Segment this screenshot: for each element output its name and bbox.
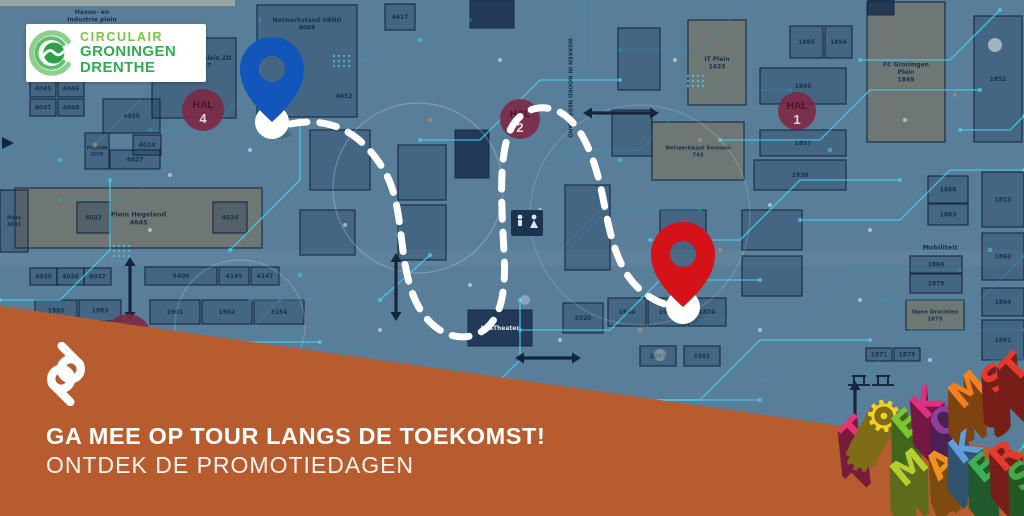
dot-grid [348, 55, 350, 57]
stand-label-line: 1861 [995, 337, 1012, 344]
dot-grid [118, 255, 120, 257]
map-label-line: Mobiliteit [922, 244, 957, 252]
stand-label: 1865 [798, 39, 815, 46]
circuit-node [318, 340, 322, 344]
dot-grid [348, 60, 350, 62]
dot-grid [118, 245, 120, 247]
glow-dot [520, 295, 530, 305]
circuit-node [228, 248, 232, 252]
circuit-node [168, 158, 172, 162]
stand-label-line: 4047 [35, 105, 52, 112]
glow-dot [654, 349, 666, 361]
circuit-node [828, 418, 832, 422]
banner-subline: ONTDEK DE PROMOTIEDAGEN [46, 452, 414, 479]
dot-grid [697, 75, 699, 77]
stand-label-line: 1862 [995, 254, 1012, 261]
stand-label: 3154 [271, 309, 288, 316]
stand-label-line: 1857 [795, 140, 812, 147]
map-dot [428, 118, 432, 122]
stand-label: 4046 [63, 86, 80, 93]
dot-grid [123, 255, 125, 257]
circuit-node [898, 178, 902, 182]
circuit-node [518, 328, 522, 332]
stand-label-line: FC Groningen [883, 62, 929, 69]
stand-label-line: 1633 [709, 63, 726, 70]
stand-label-line: 3154 [271, 309, 288, 316]
dot-grid [128, 245, 130, 247]
hal-number: 1 [793, 112, 800, 127]
stand-label: 1830 [792, 172, 809, 179]
map-stand [612, 110, 652, 156]
map-edge-strip [0, 0, 235, 6]
map-dot [418, 38, 423, 43]
map-dot [93, 143, 98, 148]
map-stand [470, 0, 514, 28]
circuit-node [698, 208, 702, 212]
circuit-node [958, 128, 962, 132]
stand-label: 1901 [167, 309, 184, 316]
stand-label: 4027 [127, 157, 144, 164]
stand-label: 1852 [990, 76, 1007, 83]
logo-text-circulair: CIRCULAIR [80, 31, 176, 44]
stand-label-line: IT Plein [704, 56, 729, 63]
map-dot [558, 338, 562, 342]
map-label: 4052 [336, 93, 353, 100]
map-stand [300, 210, 355, 255]
hal-number: 4 [199, 111, 207, 126]
circuit-node [958, 268, 962, 272]
map-dot [953, 93, 957, 97]
stand-label-line: 1813 [995, 197, 1012, 204]
aisle [0, 250, 1024, 266]
map-dot [858, 298, 862, 302]
stand-label: 4035 [35, 274, 52, 281]
map-dot [768, 203, 772, 207]
dot-grid [343, 65, 345, 67]
map-dot [58, 158, 63, 163]
stand-label-line: Netwerkkast Eemsen [665, 145, 731, 151]
stand-label-line: 1863 [940, 212, 957, 219]
circuit-node [258, 18, 262, 22]
map-label: Mobiliteit [922, 244, 957, 252]
circuit-node [58, 198, 62, 202]
stand-label-line: 4048 [63, 105, 80, 112]
stand-label-line: 4881 [7, 222, 21, 228]
stand-label-line: 4845 [129, 218, 148, 226]
map-label-line: 4068 [299, 25, 316, 32]
stand-label-line: Plein Hegeland [111, 210, 167, 218]
stand-label: 1874 [699, 309, 716, 316]
map-stand [618, 28, 660, 90]
logo-text-drenthe: DRENTHE [80, 60, 176, 76]
stand-label-line: 4145 [226, 273, 243, 280]
stand-label-line: 4045 [35, 86, 52, 93]
stand-label-line: 1879 [928, 281, 945, 288]
circuit-node [618, 78, 622, 82]
wc-sign [511, 210, 543, 236]
map-dot [468, 283, 472, 287]
circuit-node [438, 348, 442, 352]
stand-label: 1862 [995, 254, 1012, 261]
circulair-logo-card: CIRCULAIR GRONINGEN DRENTHE [26, 24, 206, 82]
dot-grid [348, 65, 350, 67]
stand-label: 4617 [392, 14, 409, 21]
map-dot [903, 118, 907, 122]
stand-label-line: 4147 [257, 273, 274, 280]
stand-label: 1861 [995, 337, 1012, 344]
stand-label: 1857 [795, 140, 812, 147]
map-stand [742, 256, 802, 296]
pd-monogram-icon [34, 342, 98, 406]
map-dot [498, 58, 502, 62]
circuit-node [148, 128, 152, 132]
stand-label-line: 4028 [91, 152, 104, 158]
stand-label: 1983 [92, 308, 109, 315]
map-dot [638, 328, 643, 333]
stand-label-line: 4035 [35, 274, 52, 281]
dot-grid [338, 65, 340, 67]
circuit-node [878, 298, 882, 302]
stand-label-line: 4046 [63, 86, 80, 93]
circuit-node [558, 148, 562, 152]
stand-label-line: 4034 [222, 215, 239, 222]
dot-grid [692, 80, 694, 82]
circuit-node [738, 8, 742, 12]
stand-label-line: 2020 [575, 315, 592, 322]
circuit-node [798, 218, 802, 222]
stand-label-line: 1849 [898, 77, 915, 84]
dot-grid [123, 245, 125, 247]
dot-grid [702, 75, 704, 77]
stand-label: 1845 [795, 83, 812, 90]
dot-grid [333, 60, 335, 62]
map-dot [718, 248, 722, 252]
map-dot [868, 228, 872, 232]
wc-figure [518, 215, 523, 220]
stand-label-line: 1901 [167, 309, 184, 316]
map-dot [378, 328, 382, 332]
stand-label-line: 1875 [899, 352, 916, 359]
hal-label: HAL [193, 100, 214, 111]
map-dot [988, 248, 993, 253]
stand-label-line: 1854 [830, 39, 847, 46]
dot-grid [123, 250, 125, 252]
map-dot [673, 58, 677, 62]
circuit-node [248, 298, 252, 302]
stand-label: 4024 [139, 142, 156, 149]
stand-label-line: 1874 [699, 309, 716, 316]
stand-label-line: 1902 [219, 309, 236, 316]
stand-label: 4037 [89, 274, 106, 281]
stand-label: 4047 [35, 105, 52, 112]
banner-headline: GA MEE OP TOUR LANGS DE TOEKOMST! [46, 423, 545, 450]
dot-grid [687, 80, 689, 82]
dot-grid [702, 80, 704, 82]
dot-grid [113, 245, 115, 247]
map-dot [343, 223, 347, 227]
stand-label-line: 4036 [62, 274, 79, 281]
circuit-node [428, 253, 432, 257]
stand-label-line: 4037 [89, 274, 106, 281]
stand-label: 1813 [995, 197, 1012, 204]
dot-grid [343, 60, 345, 62]
map-stand [868, 0, 894, 15]
stand-label-line: 1983 [92, 308, 109, 315]
map-dot [698, 138, 702, 142]
circuit-node [648, 238, 652, 242]
stand-label: 1869 [928, 262, 945, 269]
promo-banner: 404540464047404840354024PODIUM40284027Pl… [0, 0, 1024, 516]
stand-label-line: 1875 [927, 316, 942, 322]
dot-grid [692, 75, 694, 77]
map-label-line: Netwerkstand VBNO [272, 17, 341, 24]
stand-label: 1868 [940, 187, 957, 194]
circuit-node [108, 178, 112, 182]
dot-grid [333, 55, 335, 57]
circuit-node [788, 88, 792, 92]
circuit-node [868, 338, 872, 342]
stand-label: 1879 [928, 281, 945, 288]
logo-text-groningen: GRONINGEN [80, 44, 176, 60]
dot-grid [113, 255, 115, 257]
circuit-node [418, 138, 422, 142]
dot-grid [702, 85, 704, 87]
stand-label: 4036 [62, 274, 79, 281]
stand-label: 1902 [219, 309, 236, 316]
dot-grid [697, 80, 699, 82]
circuit-node [358, 58, 362, 62]
stand-label: 1854 [830, 39, 847, 46]
circuit-node [468, 248, 472, 252]
stand-label: 4045 [35, 86, 52, 93]
map-dot [248, 148, 252, 152]
stand-label-line: 1852 [990, 76, 1007, 83]
dot-grid [118, 250, 120, 252]
map-stand [398, 145, 446, 200]
stand-label: 4147 [257, 273, 274, 280]
circuit-node [278, 298, 282, 302]
map-label-line: 4052 [336, 93, 353, 100]
circuit-node [998, 8, 1002, 12]
stand-label-line: 1865 [798, 39, 815, 46]
map-dot [168, 173, 172, 177]
stand-label-line: 4032 [85, 215, 102, 222]
circuit-node [758, 398, 762, 402]
stand-label: 4032 [85, 215, 102, 222]
map-dot [298, 273, 303, 278]
stand-label: 1901 [694, 353, 711, 360]
stand-label-line: 742 [692, 152, 704, 158]
stand-label-line: PODIUM [87, 146, 108, 152]
dot-grid [692, 85, 694, 87]
stand-label-line: Plein [7, 216, 21, 222]
dot-grid [128, 250, 130, 252]
stand-label: 4145 [226, 273, 243, 280]
dot-grid [697, 85, 699, 87]
dot-grid [343, 55, 345, 57]
stand-label-line: 5400 [173, 273, 190, 280]
circuit-node [758, 378, 762, 382]
stand-label-line: 4027 [127, 157, 144, 164]
map-dot [618, 158, 623, 163]
stand-label-line: 1869 [928, 262, 945, 269]
glow-dot [988, 38, 1002, 52]
circulair-swirl-icon [28, 30, 74, 76]
stand-label-line: 1901 [694, 353, 711, 360]
stand-label-line: Open Drachten [912, 309, 959, 315]
map-dot [928, 358, 932, 362]
circuit-node [978, 88, 982, 92]
dot-grid [113, 250, 115, 252]
stand-label-line: 4024 [139, 142, 156, 149]
map-label-line: Haven- en [75, 9, 109, 16]
wc-figure [532, 215, 537, 220]
stand-label: 1875 [899, 352, 916, 359]
dot-grid [687, 85, 689, 87]
hal-label: HAL [787, 101, 808, 112]
circuit-node [758, 278, 762, 282]
stand-label: 2020 [575, 315, 592, 322]
circuit-node [468, 18, 472, 22]
stand-label-line: 1845 [795, 83, 812, 90]
stand-label: Plein4881 [7, 216, 21, 229]
stand-label: 4048 [63, 105, 80, 112]
map-dot [758, 328, 762, 332]
map-dot [828, 148, 833, 153]
dot-grid [128, 255, 130, 257]
circuit-node [378, 298, 382, 302]
stand-label-line: 1868 [940, 187, 957, 194]
stand-label: 1864 [995, 299, 1012, 306]
wc-figure [518, 220, 522, 226]
circuit-node [858, 58, 862, 62]
stand-label: 4034 [222, 215, 239, 222]
stand-label-line: Plein [898, 69, 915, 76]
dot-grid [338, 55, 340, 57]
map-dot [148, 228, 152, 232]
stand-label-line: 4617 [392, 14, 409, 21]
dot-grid [687, 75, 689, 77]
stand-label: 1863 [940, 212, 957, 219]
stand-label: 5400 [173, 273, 190, 280]
map-label-line: Industrie plein [67, 17, 116, 24]
dot-grid [338, 60, 340, 62]
stand-label-line: 1864 [995, 299, 1012, 306]
dot-grid [333, 65, 335, 67]
circuit-node [618, 48, 622, 52]
stand-label-line: 1830 [792, 172, 809, 179]
